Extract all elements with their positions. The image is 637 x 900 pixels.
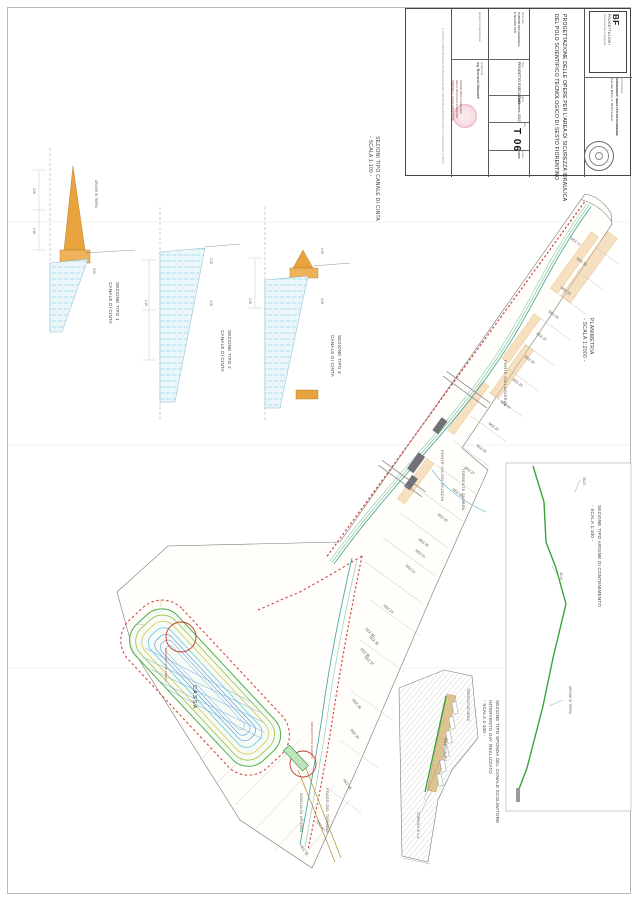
section-1-caption: SEZIONE TIPO 1CANALE DI CINTA	[107, 282, 120, 324]
elaborato-field: elaborato: PLANIMETRIA GENERALE E SEZION…	[513, 12, 525, 47]
street-label: FOSSO DEL TERMINE	[325, 788, 330, 833]
dimension-label: 1.00	[248, 298, 252, 304]
ordine-block: ORDINE DEGLI INGEGNERIDELLA PROVINCIA DI…	[451, 80, 462, 121]
planimetria-caption: PLANIMETRIA- SCALA 1:2000 -	[580, 318, 594, 362]
gruppo-label: gruppo di progettazione:	[478, 12, 482, 42]
dimension-label: 3.00	[320, 298, 324, 304]
detail-label: 38.20	[582, 477, 586, 485]
channel-2	[160, 248, 205, 402]
drawing-sheet: SEZ 17SEZ 18SEZ 19SEZ 20SEZ 21SEZ 22SEZ …	[0, 0, 637, 900]
dimension-label: 1.20	[144, 300, 148, 306]
tav-label: tav:	[523, 123, 527, 128]
detail-label: TERRENO NATURALE	[466, 688, 470, 721]
street-label: CASSA	[191, 685, 197, 710]
sheet-title: PROGETTAZIONE DELLE OPERE PER L'AREA DI …	[552, 14, 568, 201]
detail-label: CORDOLO IN C.A.	[416, 812, 420, 839]
street-label: TORRENTE ZAMBRA	[461, 468, 466, 511]
dimension-label: 2.00	[32, 188, 36, 194]
tb-divider	[584, 77, 632, 78]
detail-label: 36.40	[559, 572, 563, 580]
sez-label: SEZ 21	[535, 332, 547, 342]
street-label: PONTE VIA LAZZERINI	[503, 360, 508, 406]
section-3	[248, 207, 350, 420]
dimension-label: 3.50	[92, 268, 96, 274]
section-2	[142, 207, 240, 420]
tav-number: T 06	[511, 128, 522, 152]
copyright-note: E' VIETATA LA RIPRODUZIONE ANCHE PARZIAL…	[441, 28, 444, 164]
tb-divider	[488, 59, 529, 60]
tb-divider	[451, 59, 488, 60]
levee-1	[64, 166, 85, 250]
tb-divider	[529, 9, 530, 177]
data-field: data: Settembre 2022	[517, 96, 525, 122]
levee-3	[293, 250, 313, 268]
channel-1	[50, 259, 88, 332]
dimension-label: ARGINE IN TERRA	[94, 180, 98, 208]
argine-detail	[506, 463, 631, 811]
section-3-caption: SEZIONE TIPO 3CANALE DI CINTA	[329, 335, 342, 377]
tb-divider	[488, 9, 489, 177]
street-label: SOGLIA DI SFIORO	[299, 793, 304, 832]
scala-field: scala: varie	[517, 151, 525, 159]
detail-label: ARGINE IN TERRA	[568, 686, 572, 714]
progettista-block: progettista: ing. Bernardo Mazzanti	[476, 62, 484, 99]
type-sections	[32, 148, 350, 420]
university-seal-icon	[584, 141, 614, 171]
bf-logo: BF PROGETTAZIONI studio associato di ing…	[602, 14, 620, 46]
dimension-label: 2.00	[209, 258, 213, 264]
committente-block: committente: UNIVERSITA' DEGLI STUDI DI …	[609, 78, 624, 136]
sezioni-tipo-caption: SEZIONI TIPO CANALE DI CINTA- SCALA 1:10…	[366, 136, 380, 221]
street-label: PONTE VIA DEI GIUNCHI	[440, 450, 445, 501]
detail-label: PALANCOLATO	[443, 738, 447, 761]
sponda-caption: SEZIONE TIPO SPONDA DEL CANALE SCOLMATOR…	[481, 700, 501, 823]
structure-label: MANUFATTO DI PRESA	[164, 648, 168, 681]
dimension-label: 1.50	[32, 228, 36, 234]
argine-caption: SEZIONE TIPO ARGINE DI CONTENIMENTO- SCA…	[589, 505, 602, 607]
sez-label: SEZ 23	[511, 378, 523, 388]
channel-3	[265, 276, 308, 408]
dimension-label: 1.50	[320, 248, 324, 254]
section-2-caption: SEZIONE TIPO 2CANALE DI CINTA	[219, 330, 232, 372]
dimension-label: 4.00	[209, 300, 213, 306]
structure-label: MANUFATTO DI SCARICO	[310, 722, 314, 759]
sez-label: SEZ 25	[487, 422, 499, 432]
